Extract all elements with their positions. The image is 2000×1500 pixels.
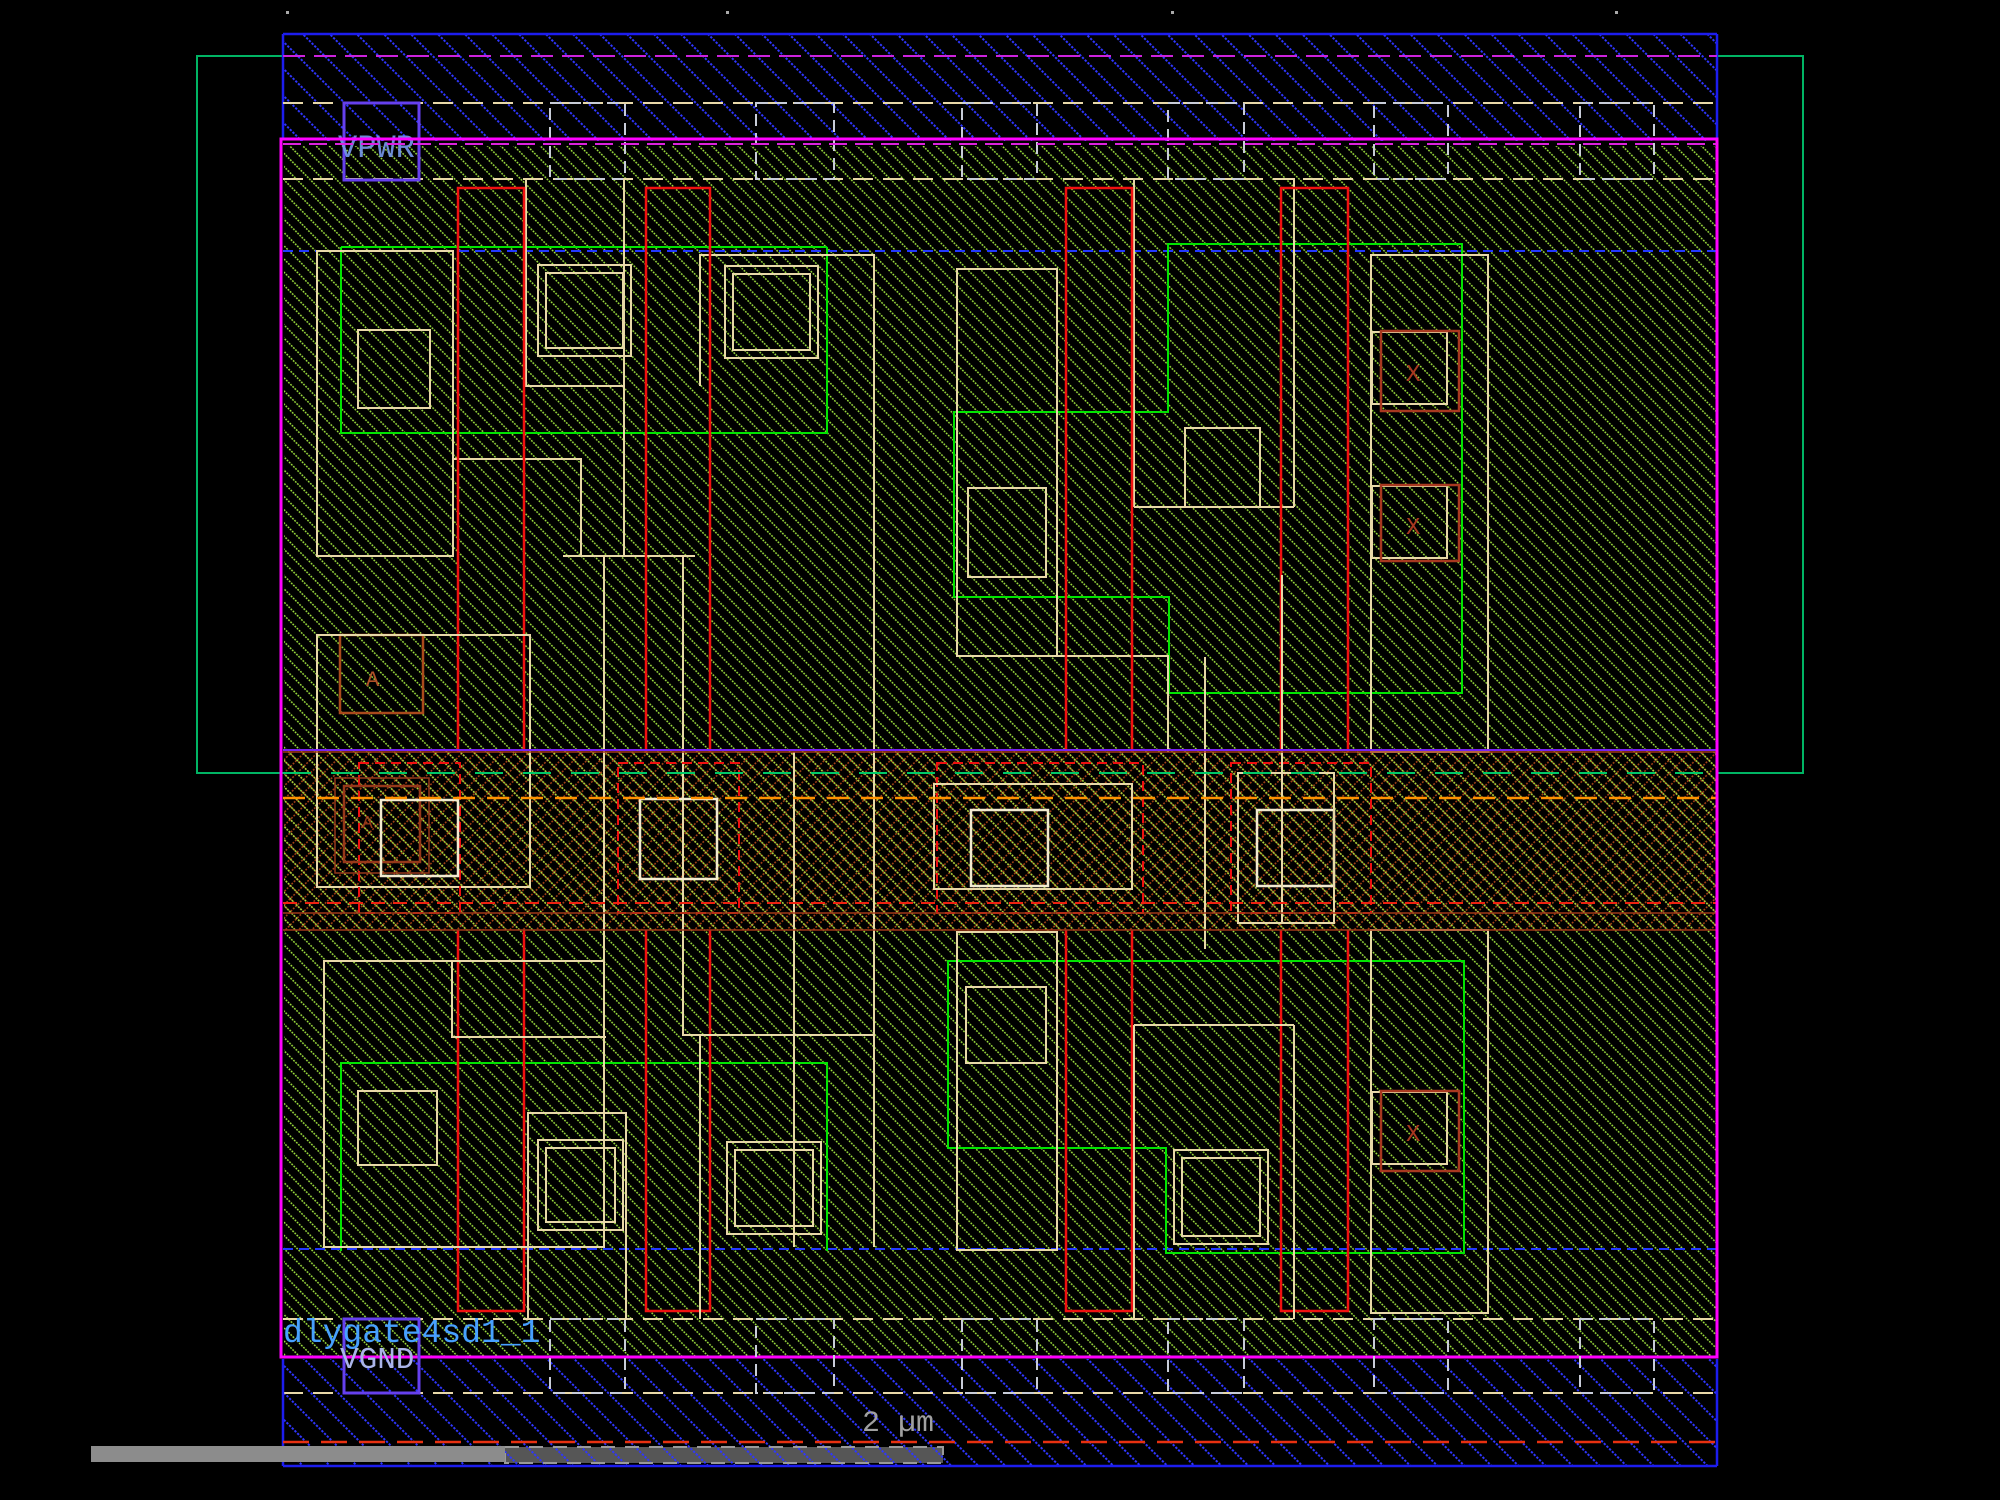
svg-text:X: X [1406, 1122, 1420, 1149]
svg-text:X: X [1406, 362, 1420, 389]
svg-text:VPWR: VPWR [338, 130, 415, 167]
svg-text:A: A [366, 668, 380, 693]
svg-text:A: A [362, 814, 373, 834]
svg-text:VGND: VGND [340, 1343, 414, 1378]
svg-text:X: X [1406, 515, 1420, 542]
svg-text:2 µm: 2 µm [862, 1407, 934, 1441]
